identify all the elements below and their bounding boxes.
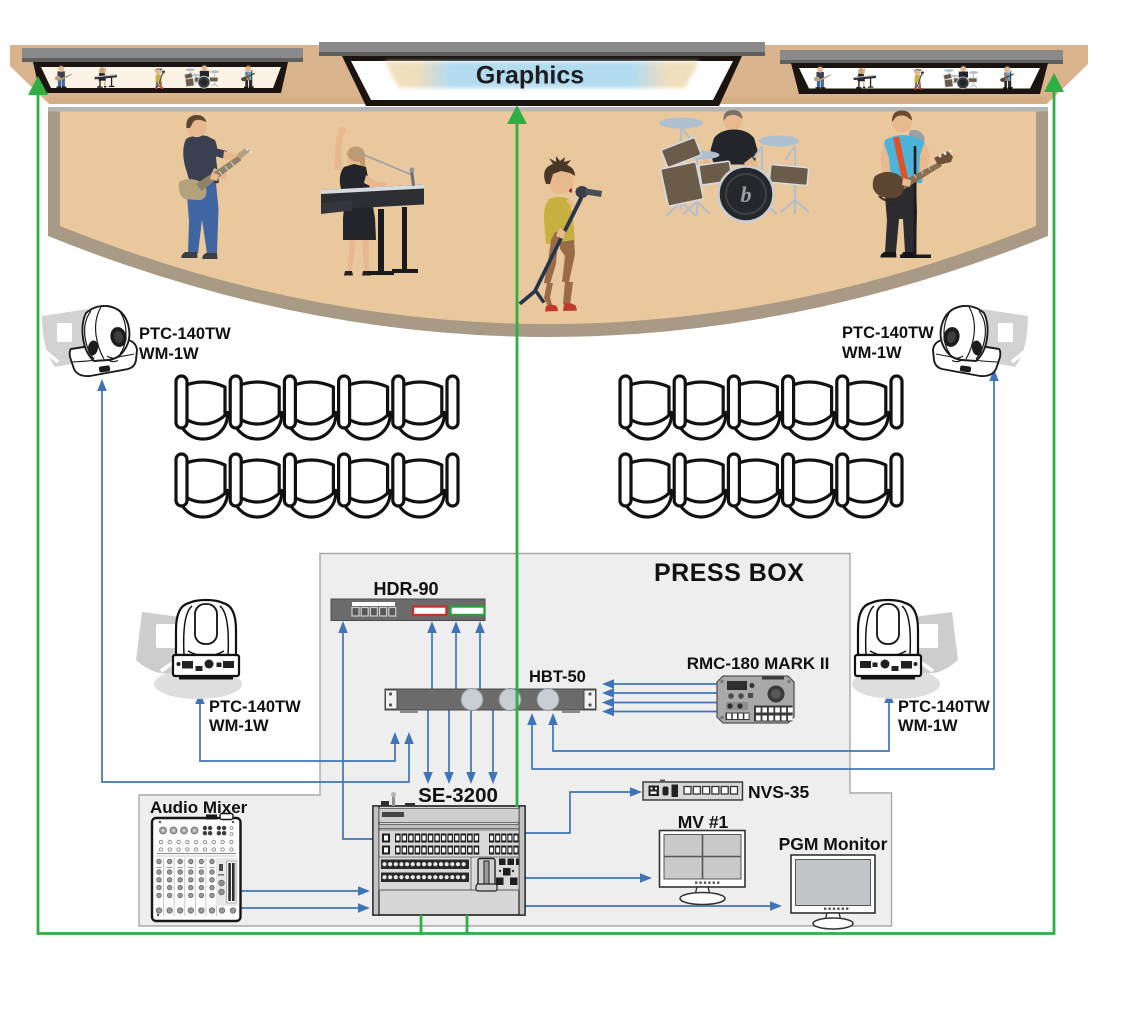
svg-text:SE-3200: SE-3200 (418, 784, 498, 807)
svg-text:PGM Monitor: PGM Monitor (779, 834, 888, 854)
svg-text:Graphics: Graphics (476, 62, 584, 90)
svg-text:HBT-50: HBT-50 (529, 668, 586, 686)
svg-text:MV #1: MV #1 (678, 812, 729, 832)
svg-text:WM-1W: WM-1W (139, 345, 199, 363)
svg-text:WM-1W: WM-1W (209, 717, 269, 735)
svg-text:RMC-180 MARK II: RMC-180 MARK II (687, 654, 830, 673)
svg-text:PTC-140TW: PTC-140TW (898, 698, 990, 716)
svg-text:HDR-90: HDR-90 (373, 579, 438, 599)
svg-text:PTC-140TW: PTC-140TW (842, 324, 934, 342)
svg-text:PRESS BOX: PRESS BOX (654, 559, 804, 587)
svg-text:b: b (741, 182, 752, 207)
svg-text:PTC-140TW: PTC-140TW (139, 325, 231, 343)
svg-text:WM-1W: WM-1W (898, 717, 958, 735)
svg-text:NVS-35: NVS-35 (748, 782, 810, 802)
svg-text:PTC-140TW: PTC-140TW (209, 698, 301, 716)
svg-text:WM-1W: WM-1W (842, 344, 902, 362)
svg-text:Audio Mixer: Audio Mixer (150, 798, 248, 817)
